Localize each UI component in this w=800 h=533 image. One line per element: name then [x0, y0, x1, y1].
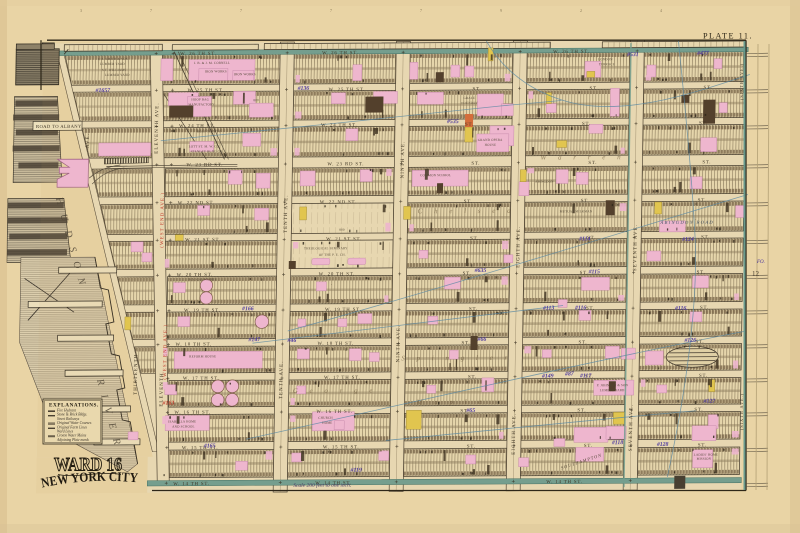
- svg-text:(SIXTH AVE.): (SIXTH AVE.): [739, 63, 744, 100]
- svg-text:7: 7: [420, 8, 422, 13]
- svg-text:FO.: FO.: [756, 260, 765, 265]
- svg-text:9: 9: [500, 8, 502, 13]
- svg-text:4: 4: [660, 8, 662, 13]
- svg-text:12: 12: [752, 270, 760, 278]
- svg-text:7: 7: [150, 8, 152, 13]
- svg-text:7: 7: [240, 8, 242, 13]
- svg-text:(SIXTH AVE.): (SIXTH AVE.): [739, 393, 744, 430]
- svg-text:2: 2: [580, 8, 582, 13]
- svg-text:Adjoining Plate numb.: Adjoining Plate numb.: [56, 438, 90, 442]
- svg-text:7: 7: [330, 8, 332, 13]
- svg-text:3: 3: [80, 8, 82, 13]
- svg-text:PLATE 11.: PLATE 11.: [703, 32, 753, 41]
